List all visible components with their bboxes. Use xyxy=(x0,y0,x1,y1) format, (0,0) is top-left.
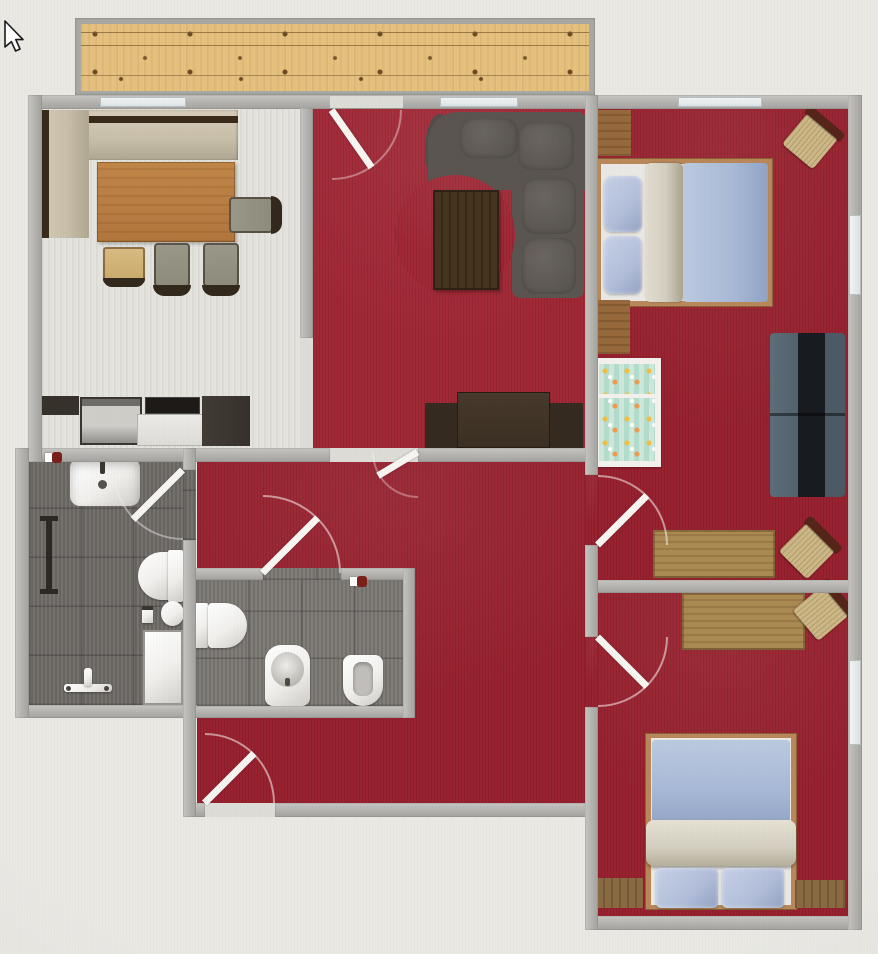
single-bed[interactable] xyxy=(645,733,797,910)
wooden-chair-back xyxy=(103,278,145,287)
stool[interactable] xyxy=(161,601,184,626)
bidet-drain xyxy=(285,678,290,686)
wall xyxy=(28,95,42,462)
wall xyxy=(418,448,598,462)
wall xyxy=(15,705,197,718)
towel-rail[interactable] xyxy=(46,516,52,594)
urinal-basin xyxy=(353,662,373,696)
wood-floor-strip xyxy=(795,880,845,908)
wall xyxy=(585,707,598,930)
desk[interactable] xyxy=(653,530,775,578)
chair-seat xyxy=(154,243,190,287)
bathroom-door-opening xyxy=(183,470,196,540)
toilet-paper-holder-cap xyxy=(142,606,153,610)
oven[interactable] xyxy=(145,397,200,414)
coffee-table[interactable] xyxy=(433,190,499,290)
chair-back xyxy=(202,285,240,296)
window xyxy=(849,215,861,295)
chair-back xyxy=(271,196,282,234)
double-bed[interactable] xyxy=(595,158,773,307)
wall xyxy=(585,95,598,475)
bidet[interactable] xyxy=(265,645,310,706)
duvet xyxy=(683,163,768,302)
crib[interactable] xyxy=(593,358,661,467)
tv-sideboard-right[interactable] xyxy=(550,403,583,448)
dining-chair[interactable] xyxy=(229,196,283,234)
toilet-tank xyxy=(195,603,208,648)
deck-plank-line xyxy=(81,45,589,46)
accessory xyxy=(52,452,62,463)
pillow xyxy=(604,176,642,232)
towel-rail-end xyxy=(40,589,58,594)
sofa-cushion xyxy=(518,122,574,170)
floor-plan-canvas[interactable] xyxy=(0,0,878,954)
washbasin-drain xyxy=(98,480,107,489)
window xyxy=(440,97,518,107)
shower-knob[interactable] xyxy=(66,686,71,691)
sofa-cushion xyxy=(522,238,576,294)
window xyxy=(849,660,861,745)
shower-knob[interactable] xyxy=(104,686,109,691)
dining-table[interactable] xyxy=(97,162,235,242)
window xyxy=(100,97,186,107)
corner-bench-left-rail xyxy=(42,110,49,238)
kitchen-cabinet[interactable] xyxy=(137,414,203,446)
wall xyxy=(403,568,415,718)
bedroom-2-door-opening xyxy=(585,637,598,707)
wall xyxy=(585,545,598,637)
tv-sideboard-left[interactable] xyxy=(425,403,457,448)
balcony-door-opening xyxy=(330,96,403,108)
dining-chair[interactable] xyxy=(153,243,191,297)
cursor-arrow-icon xyxy=(3,20,27,54)
towel-rail-end xyxy=(40,516,58,521)
wall xyxy=(183,448,196,470)
wall xyxy=(15,448,29,718)
kitchen-living-passage xyxy=(300,338,313,448)
wall xyxy=(300,108,313,338)
shower-tray[interactable] xyxy=(143,630,183,705)
tv-sideboard-center[interactable] xyxy=(457,392,550,448)
duvet xyxy=(652,740,790,823)
wall xyxy=(585,580,862,593)
tall-cabinet[interactable] xyxy=(202,396,250,446)
dresser[interactable] xyxy=(593,110,631,156)
pillow xyxy=(656,868,718,908)
wall xyxy=(183,540,196,817)
deck-plank-line xyxy=(81,32,589,33)
wall xyxy=(275,803,598,817)
chair-seat xyxy=(229,197,273,233)
window xyxy=(678,97,762,107)
accessory xyxy=(45,453,52,462)
balcony-deck-boards xyxy=(81,24,589,91)
shower-fixture-riser xyxy=(84,668,92,686)
wall-sofa[interactable] xyxy=(770,333,845,497)
entry-door-opening xyxy=(205,803,275,817)
chair-back xyxy=(153,285,191,296)
folded-blanket xyxy=(645,163,683,302)
crib-divider xyxy=(597,394,657,398)
dining-chair[interactable] xyxy=(202,243,240,297)
urinal[interactable] xyxy=(343,655,383,706)
crib-bedding xyxy=(599,364,655,461)
sofa-cushion xyxy=(460,118,518,158)
pillow xyxy=(604,236,642,294)
desk[interactable] xyxy=(682,593,805,650)
toilet-tank xyxy=(168,550,183,602)
wall-sofa-seam xyxy=(770,413,845,416)
cooktop[interactable] xyxy=(80,397,142,445)
wall xyxy=(183,706,415,718)
deck-plank-line xyxy=(81,75,589,76)
sofa-cushion xyxy=(522,178,576,234)
wall xyxy=(28,448,330,462)
wood-floor-strip xyxy=(595,878,643,908)
chair-seat xyxy=(203,243,239,287)
bedroom-1-door-opening xyxy=(585,475,598,545)
blanket xyxy=(646,820,796,866)
accessory xyxy=(350,577,357,586)
pillow xyxy=(722,868,784,908)
wall xyxy=(585,916,862,930)
accessory xyxy=(357,576,367,587)
